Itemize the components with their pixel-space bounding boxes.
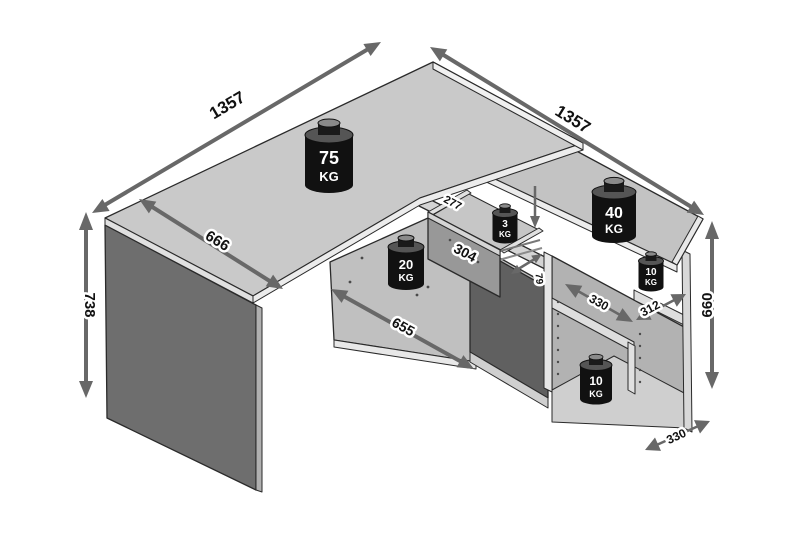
weight-unit: KG <box>589 389 603 399</box>
furniture-dimension-diagram: 75 KG 40 KG 20 KG <box>0 0 800 533</box>
weight-10kg-upper: 10 KG <box>639 252 664 292</box>
weight-unit: KG <box>605 222 623 236</box>
weight-10kg-bottom: 10 KG <box>580 354 612 404</box>
weight-value: 10 <box>645 267 657 278</box>
pin-hole <box>349 281 352 284</box>
pin-hole <box>416 294 419 297</box>
weight-value: 3 <box>502 219 508 230</box>
shelf-unit-divider-edge <box>544 252 552 392</box>
weight-20kg: 20 KG <box>388 235 424 290</box>
dim-desk-height-label: 738 <box>81 292 98 317</box>
weight-value: 75 <box>319 148 339 168</box>
weight-value: 40 <box>605 205 623 222</box>
weight-unit: KG <box>319 169 339 184</box>
weight-40kg: 40 KG <box>592 177 636 243</box>
weight-value: 20 <box>399 257 413 272</box>
dim-drawer-height-label: 79 <box>533 273 545 285</box>
shelf-unit-right-panel-edge <box>682 250 692 432</box>
shelf-sub-divider-edge <box>628 342 635 394</box>
dim-desk-length-left-label: 1357 <box>206 87 248 123</box>
weight-unit: KG <box>645 278 657 287</box>
pin-hole <box>361 257 364 260</box>
weight-value: 10 <box>589 374 603 388</box>
weight-3kg: 3 KG <box>493 204 518 244</box>
pin-hole <box>427 286 430 289</box>
weight-75kg: 75 KG <box>305 119 353 193</box>
weight-unit: KG <box>399 273 414 284</box>
shelf-unit <box>544 250 692 432</box>
dim-unit-height-label: 660 <box>699 292 716 317</box>
weight-unit: KG <box>499 230 511 239</box>
left-leg-edge <box>256 305 262 492</box>
diagram-canvas: 75 KG 40 KG 20 KG <box>0 0 800 533</box>
